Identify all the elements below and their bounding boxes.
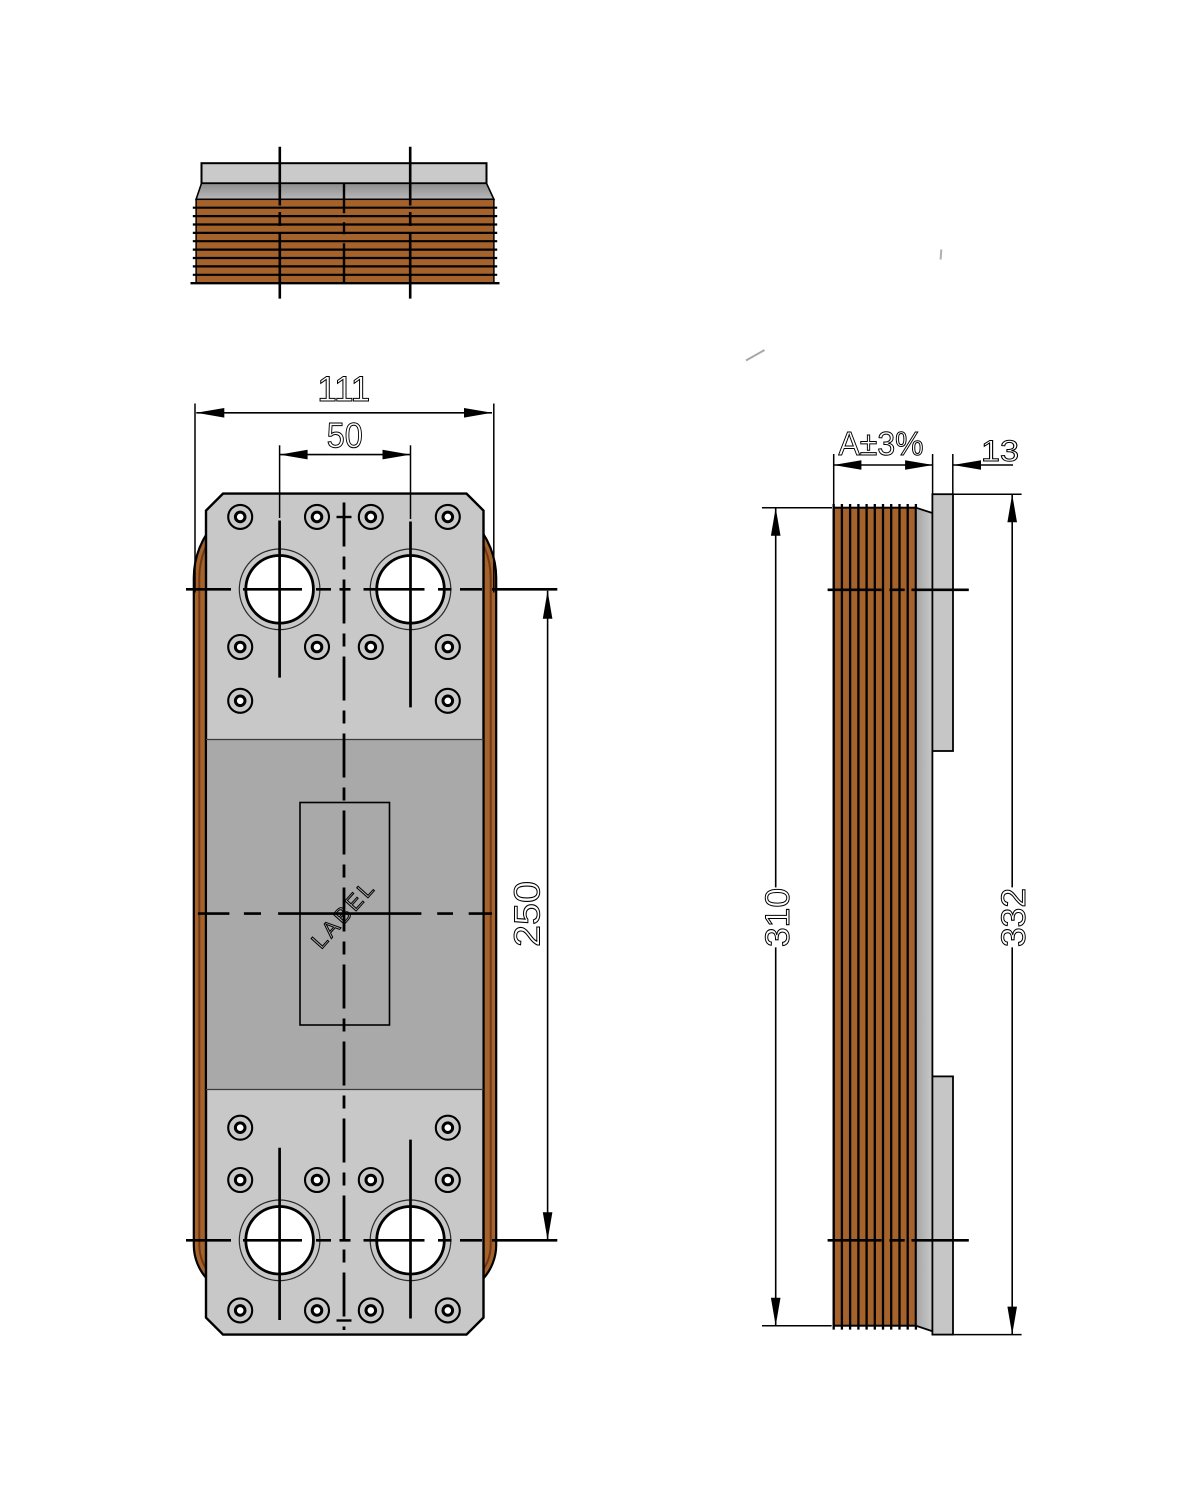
svg-text:50: 50	[327, 417, 363, 456]
svg-text:13: 13	[981, 435, 1019, 468]
svg-text:250: 250	[507, 881, 548, 947]
svg-text:1: 1	[351, 370, 370, 409]
svg-text:A±3%: A±3%	[839, 425, 924, 462]
svg-text:332: 332	[995, 888, 1033, 947]
svg-text:310: 310	[759, 888, 797, 947]
